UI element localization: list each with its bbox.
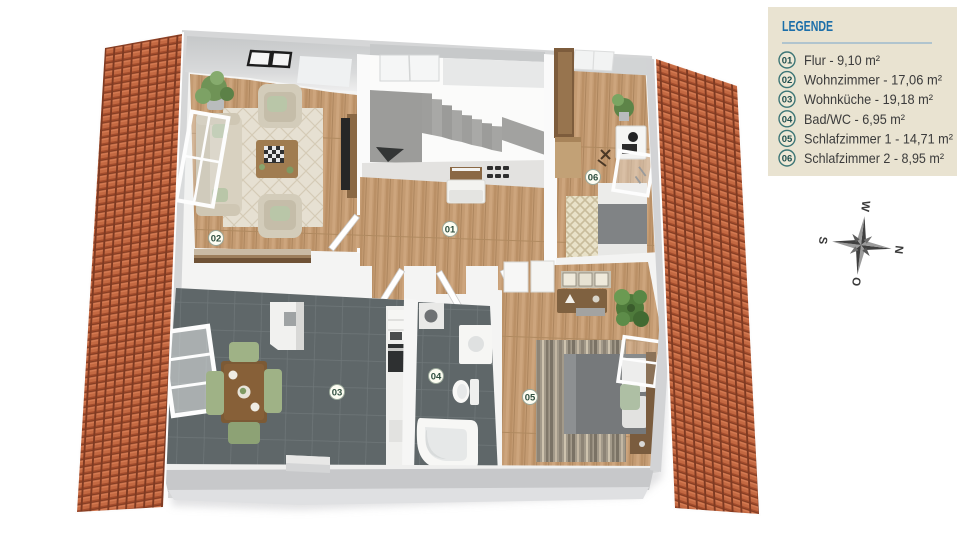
- svg-text:N: N: [892, 245, 905, 255]
- svg-text:06: 06: [782, 154, 793, 165]
- svg-text:04: 04: [431, 372, 442, 383]
- svg-text:Schlafzimmer 2 - 8,95 m²: Schlafzimmer 2 - 8,95 m²: [804, 151, 944, 166]
- svg-text:02: 02: [211, 234, 222, 245]
- svg-text:Wohnzimmer - 17,06 m²: Wohnzimmer - 17,06 m²: [804, 73, 942, 88]
- svg-text:01: 01: [782, 56, 793, 67]
- svg-text:05: 05: [525, 393, 536, 404]
- svg-text:LEGENDE: LEGENDE: [782, 18, 833, 35]
- svg-text:01: 01: [445, 225, 456, 236]
- svg-text:04: 04: [782, 114, 793, 125]
- svg-text:05: 05: [782, 134, 793, 145]
- svg-text:Schlafzimmer 1 - 14,71 m²: Schlafzimmer 1 - 14,71 m²: [804, 131, 953, 146]
- svg-text:Flur - 9,10 m²: Flur - 9,10 m²: [804, 53, 880, 68]
- svg-text:03: 03: [332, 388, 343, 399]
- svg-text:03: 03: [782, 95, 793, 106]
- svg-text:Wohnküche - 19,18 m²: Wohnküche - 19,18 m²: [804, 92, 933, 107]
- svg-text:W: W: [858, 200, 871, 212]
- svg-text:Bad/WC - 6,95 m²: Bad/WC - 6,95 m²: [804, 112, 905, 127]
- svg-text:06: 06: [588, 173, 599, 184]
- svg-text:02: 02: [782, 75, 793, 86]
- svg-text:O: O: [849, 276, 862, 286]
